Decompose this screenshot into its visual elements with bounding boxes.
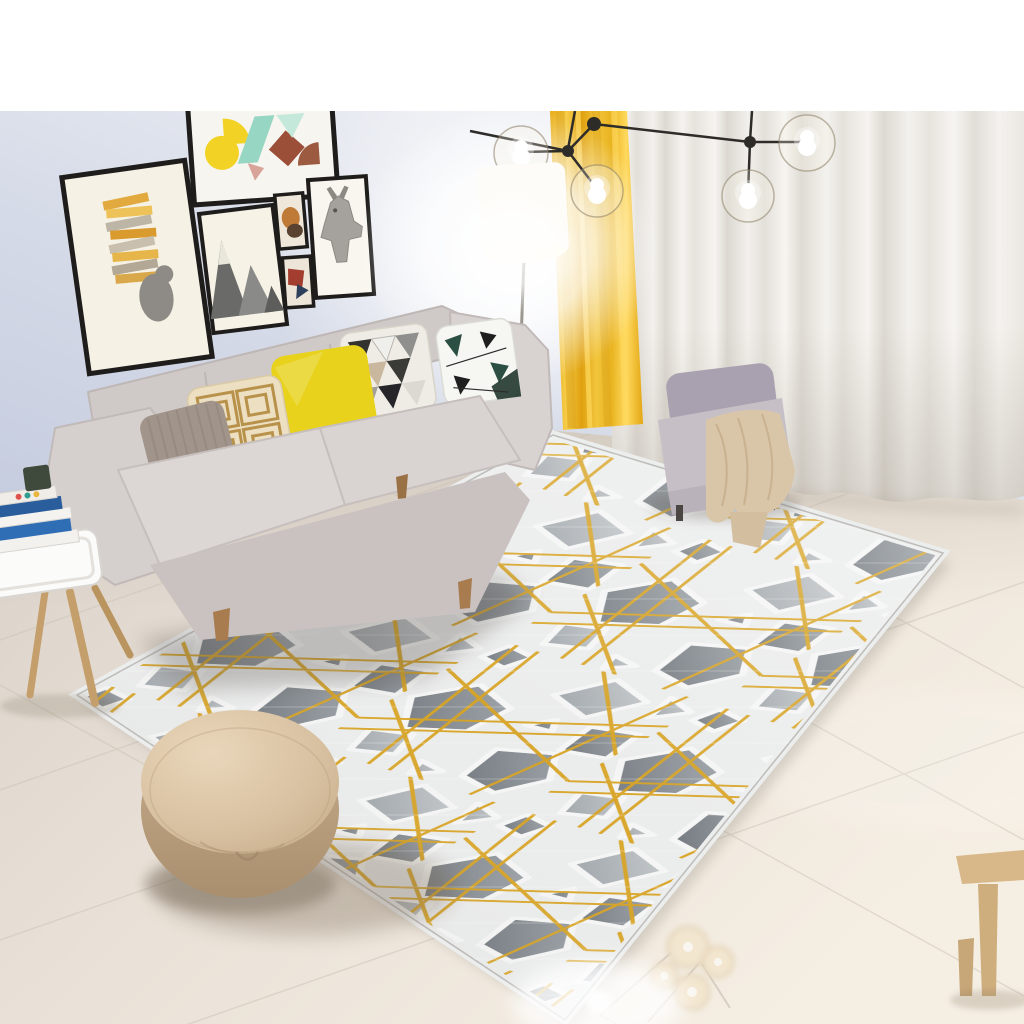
- lamp-inner-glow: [442, 190, 582, 314]
- sofa-leg: [396, 474, 408, 499]
- sofa-leg: [458, 578, 472, 609]
- throw-pillow-memphis: [435, 317, 521, 407]
- living-room-photo: [0, 0, 1024, 1024]
- pouf-top: [141, 710, 339, 854]
- letterbox-top: [0, 0, 1024, 111]
- chandelier-joint: [587, 117, 601, 131]
- stool-leg: [958, 938, 974, 996]
- screenshot-canvas: [0, 0, 1024, 1024]
- cup: [23, 464, 52, 491]
- small-art-frame-upper: [275, 193, 308, 249]
- chandelier-hub: [562, 145, 574, 157]
- sofa-leg: [213, 608, 230, 641]
- mountain-art-frame: [198, 205, 287, 333]
- table-shadow: [0, 694, 120, 718]
- armchair-leg: [676, 505, 683, 521]
- chandelier-hub: [744, 136, 756, 148]
- books-art-frame: [62, 160, 212, 373]
- small-art-frame-lower: [282, 256, 313, 308]
